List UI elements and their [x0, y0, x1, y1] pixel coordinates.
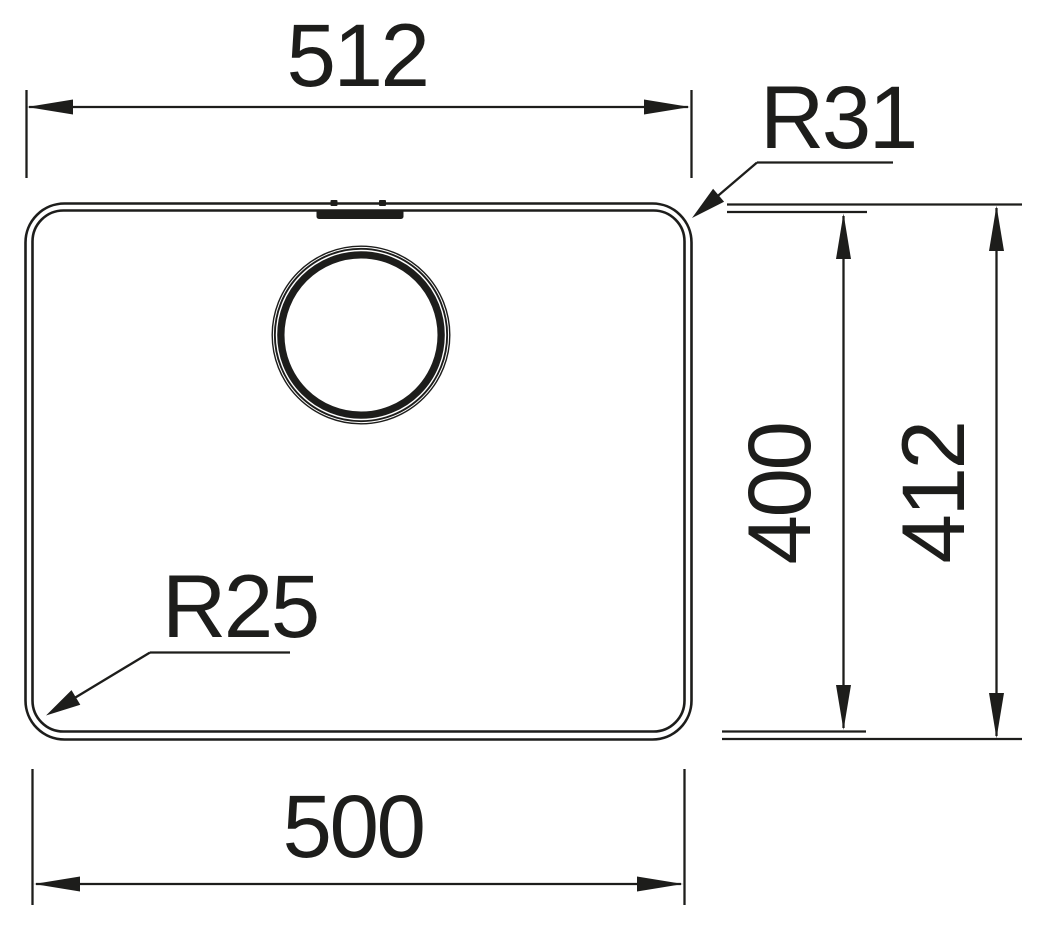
- inner-width-dimension: 500: [33, 769, 685, 905]
- tap-ledge-notch-right: [379, 200, 386, 206]
- outer-depth-dimension-label: 412: [883, 423, 983, 564]
- arrowhead-bottom: [836, 685, 851, 730]
- leader-arrowhead: [46, 690, 80, 715]
- outer-width-dimension: 512: [27, 5, 692, 178]
- arrowhead-right: [644, 100, 690, 115]
- arrowhead-right: [637, 877, 683, 892]
- outer-corner-radius-callout: R31: [692, 67, 916, 218]
- arrowhead-left: [27, 100, 73, 115]
- arrowhead-bottom: [989, 693, 1004, 738]
- sink-outer-outline: [26, 204, 692, 740]
- drain-ring: [278, 252, 444, 418]
- outer-width-dimension-label: 512: [287, 5, 428, 105]
- inner-corner-radius-label: R25: [162, 556, 318, 656]
- drain-hole: [273, 247, 448, 422]
- sink-body: [26, 200, 692, 740]
- arrowhead-top: [989, 206, 1004, 251]
- arrowhead-top: [836, 214, 851, 260]
- arrowhead-left: [34, 877, 80, 892]
- tap-ledge-marking: [317, 210, 404, 220]
- inner-depth-dimension: 400: [729, 214, 851, 731]
- inner-depth-dimension-label: 400: [729, 424, 829, 565]
- inner-width-dimension-label: 500: [283, 776, 424, 876]
- outer-corner-radius-label: R31: [760, 67, 916, 167]
- tap-ledge-notch-left: [331, 200, 338, 206]
- sink-inner-outline: [33, 211, 685, 732]
- sink-technical-drawing: 512 R31 400 412: [0, 0, 1048, 926]
- inner-corner-radius-callout: R25: [46, 556, 318, 716]
- outer-depth-dimension: 412: [883, 206, 1004, 738]
